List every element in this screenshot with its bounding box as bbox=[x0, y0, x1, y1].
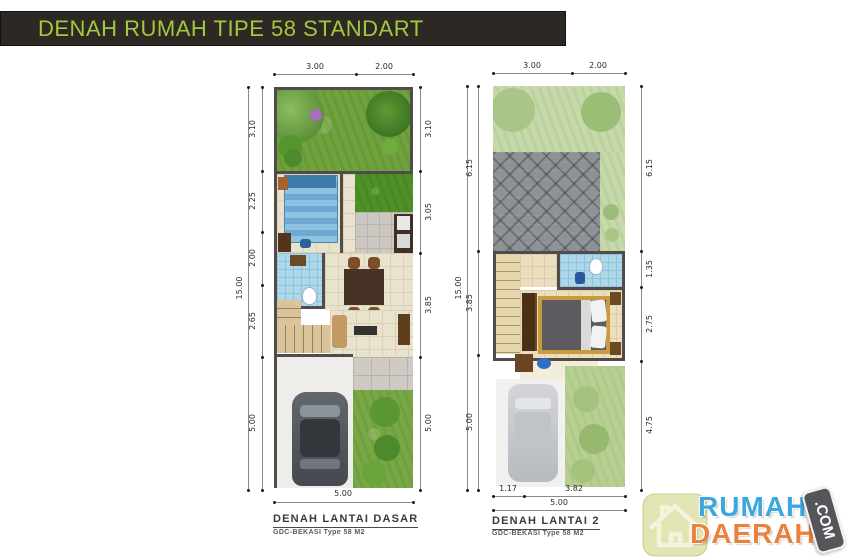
shrub-icon bbox=[370, 397, 400, 427]
dim-tick bbox=[640, 286, 643, 289]
dim-tick bbox=[624, 495, 627, 498]
toilet bbox=[589, 258, 603, 275]
dim-line bbox=[493, 510, 625, 511]
dim-tick bbox=[624, 72, 627, 75]
dim-tick bbox=[624, 509, 627, 512]
dim-tick bbox=[466, 489, 469, 492]
logo-text-daerah: DAERAH bbox=[690, 518, 816, 550]
bench bbox=[515, 354, 533, 372]
shrub-icon bbox=[362, 461, 386, 485]
tree-icon bbox=[493, 88, 535, 132]
dim-tick bbox=[492, 72, 495, 75]
dimension-label: 3.00 bbox=[298, 62, 332, 72]
cabinet bbox=[278, 233, 291, 252]
dimension-label: 6.15 bbox=[465, 151, 475, 185]
dim-tick bbox=[261, 284, 264, 287]
dim-tick bbox=[523, 495, 526, 498]
wall bbox=[622, 251, 625, 361]
nightstand bbox=[610, 342, 621, 355]
dim-tick bbox=[419, 170, 422, 173]
dim-line bbox=[493, 496, 625, 497]
palm-tree-icon bbox=[581, 92, 621, 132]
chair bbox=[368, 257, 380, 269]
dim-tick bbox=[477, 85, 480, 88]
dim-tick bbox=[355, 73, 358, 76]
toilet bbox=[302, 287, 317, 305]
terrace-floor bbox=[353, 357, 413, 390]
dim-tick bbox=[492, 495, 495, 498]
dim-tick bbox=[273, 73, 276, 76]
car-roof bbox=[300, 419, 340, 457]
dim-tick bbox=[477, 354, 480, 357]
dimension-label: 3.00 bbox=[515, 61, 549, 71]
floorplan-ground bbox=[274, 87, 413, 490]
dim-tick bbox=[571, 72, 574, 75]
side-cabinet bbox=[398, 314, 410, 345]
palm-tree-icon bbox=[366, 91, 412, 137]
dim-line bbox=[274, 502, 413, 503]
dining-table bbox=[344, 269, 384, 305]
sofa bbox=[332, 315, 347, 348]
dim-tick bbox=[419, 86, 422, 89]
dim-line bbox=[493, 73, 625, 74]
sink bbox=[397, 234, 410, 248]
bed-pillows bbox=[284, 175, 336, 188]
dimension-label: 2.00 bbox=[581, 61, 615, 71]
dim-tick bbox=[261, 170, 264, 173]
dimension-label: 15.00 bbox=[454, 271, 464, 305]
floorplan-second bbox=[493, 86, 625, 490]
dimension-label: 3.10 bbox=[248, 112, 258, 146]
dimension-label: 2.65 bbox=[248, 304, 258, 338]
bath-mat bbox=[575, 272, 585, 284]
dim-line bbox=[420, 87, 421, 490]
wardrobe bbox=[522, 293, 537, 351]
chair bbox=[348, 257, 360, 269]
dim-tick bbox=[273, 501, 276, 504]
dim-tick bbox=[261, 356, 264, 359]
dim-tick bbox=[419, 489, 422, 492]
dim-tick bbox=[261, 231, 264, 234]
hall-floor bbox=[520, 254, 560, 287]
dim-tick bbox=[477, 250, 480, 253]
pouf bbox=[300, 239, 311, 248]
dim-tick bbox=[419, 356, 422, 359]
dim-tick bbox=[412, 73, 415, 76]
dim-tick bbox=[247, 86, 250, 89]
dimension-label: 2.00 bbox=[248, 241, 258, 275]
dim-tick bbox=[412, 501, 415, 504]
dimension-label: 5.00 bbox=[465, 405, 475, 439]
dimension-label: 2.75 bbox=[645, 307, 655, 341]
dimension-label: 3.05 bbox=[424, 195, 434, 229]
stove bbox=[397, 216, 410, 230]
dim-tick bbox=[640, 360, 643, 363]
dim-tick bbox=[640, 250, 643, 253]
planter bbox=[537, 358, 551, 369]
shrub-icon bbox=[573, 386, 599, 412]
shrub-icon bbox=[284, 149, 302, 167]
dim-tick bbox=[261, 86, 264, 89]
dimension-label: 15.00 bbox=[235, 271, 245, 305]
dim-line bbox=[274, 74, 413, 75]
dim-tick bbox=[466, 85, 469, 88]
dimension-label: 3.10 bbox=[424, 112, 434, 146]
dimension-label: 3.85 bbox=[465, 286, 475, 320]
dim-line bbox=[478, 86, 479, 490]
car-roof bbox=[515, 412, 551, 446]
plan-caption-second: DENAH LANTAI 2 bbox=[492, 515, 600, 530]
shrub-icon bbox=[603, 204, 619, 220]
dimension-label: 6.15 bbox=[645, 151, 655, 185]
plan-caption-ground: DENAH LANTAI DASAR bbox=[273, 513, 418, 528]
dimension-label: 1.35 bbox=[645, 252, 655, 286]
shrub-icon bbox=[374, 435, 400, 461]
plan-subcaption-ground: GDC-BEKASI Type 58 M2 bbox=[273, 529, 365, 536]
shrub-icon bbox=[605, 228, 619, 242]
stairs-landing bbox=[277, 325, 330, 353]
dim-tick bbox=[640, 85, 643, 88]
site-logo[interactable]: RUMAH DAERAH .COM bbox=[640, 485, 850, 560]
car-windshield bbox=[300, 405, 340, 417]
dimension-label: 5.00 bbox=[542, 498, 576, 508]
dim-tick bbox=[419, 252, 422, 255]
pillow bbox=[590, 299, 607, 322]
tv-cabinet bbox=[354, 326, 377, 335]
stairs bbox=[496, 254, 520, 354]
dimension-label: 3.85 bbox=[424, 288, 434, 322]
car-windshield bbox=[515, 398, 551, 409]
dimension-label: 5.00 bbox=[424, 406, 434, 440]
dimension-label: 5.00 bbox=[248, 406, 258, 440]
pillow bbox=[590, 325, 607, 348]
shrub-icon bbox=[571, 459, 595, 483]
nightstand bbox=[278, 177, 288, 190]
shrub-icon bbox=[382, 139, 398, 155]
dimension-label: 1.17 bbox=[491, 484, 525, 494]
wall bbox=[557, 254, 560, 290]
inner-garden bbox=[355, 174, 413, 212]
page-title: DENAH RUMAH TIPE 58 STANDART bbox=[0, 11, 566, 46]
dim-tick bbox=[492, 509, 495, 512]
dim-line bbox=[262, 87, 263, 490]
dim-tick bbox=[261, 489, 264, 492]
wall bbox=[274, 87, 413, 90]
plan-subcaption-second: GDC-BEKASI Type 58 M2 bbox=[492, 530, 584, 537]
shrub-icon bbox=[579, 424, 609, 454]
dimension-label: 4.75 bbox=[645, 408, 655, 442]
dim-tick bbox=[247, 489, 250, 492]
car-rear-window bbox=[300, 459, 340, 469]
roof-tiles bbox=[493, 152, 600, 251]
flower-icon bbox=[310, 109, 322, 121]
dimension-label: 2.25 bbox=[248, 184, 258, 218]
dimension-label: 2.00 bbox=[367, 62, 401, 72]
dimension-label: 5.00 bbox=[326, 489, 360, 499]
vanity bbox=[290, 255, 306, 266]
nightstand bbox=[610, 292, 621, 305]
floorplan-poster: DENAH RUMAH TIPE 58 STANDART bbox=[0, 0, 850, 560]
dim-tick bbox=[477, 489, 480, 492]
dimension-label: 3.82 bbox=[557, 484, 591, 494]
